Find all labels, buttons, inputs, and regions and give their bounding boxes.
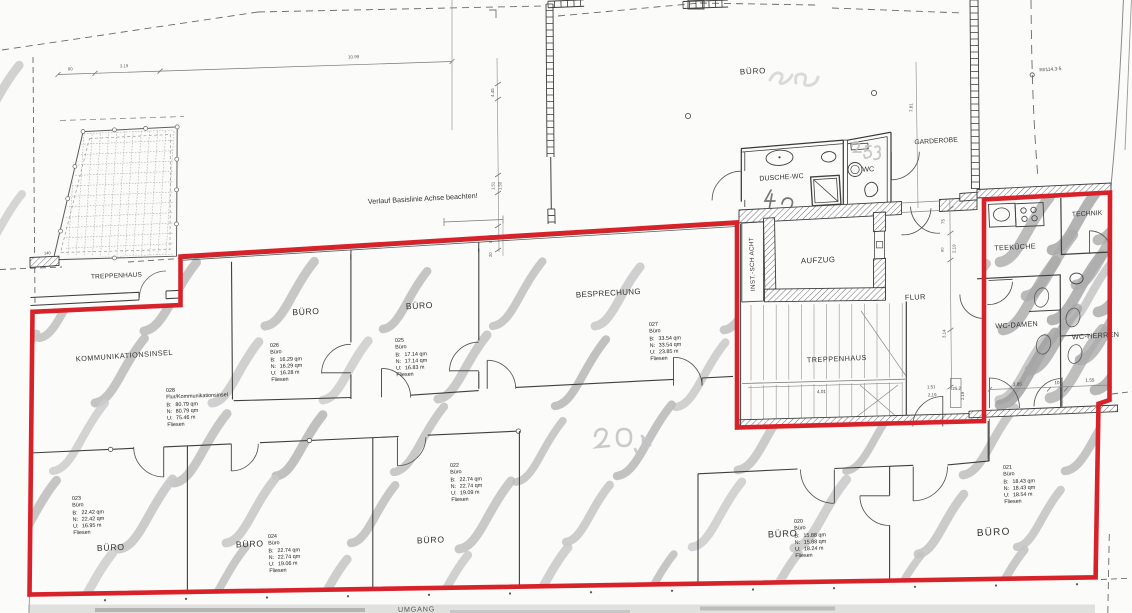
svg-text:2.19: 2.19 <box>952 244 957 253</box>
svg-text:025: 025 <box>395 338 404 344</box>
svg-text:B:: B: <box>649 336 654 342</box>
svg-text:WC: WC <box>862 164 874 174</box>
svg-text:Fliesen: Fliesen <box>650 356 668 363</box>
svg-text:10.99: 10.99 <box>348 54 360 59</box>
svg-text:Fliesen: Fliesen <box>795 553 813 560</box>
svg-text:B:: B: <box>450 477 455 483</box>
svg-text:80: 80 <box>68 66 74 71</box>
svg-text:U:: U: <box>451 490 457 496</box>
svg-text:Fliesen: Fliesen <box>167 422 185 429</box>
svg-text:U:: U: <box>1004 492 1010 498</box>
svg-text:10: 10 <box>1054 380 1060 385</box>
svg-text:1.85: 1.85 <box>1013 381 1023 386</box>
svg-text:022: 022 <box>450 463 459 469</box>
svg-text:N:: N: <box>269 555 275 561</box>
svg-text:BÜRO: BÜRO <box>236 538 264 549</box>
svg-text:N:: N: <box>73 517 79 523</box>
svg-text:80.79 qm: 80.79 qm <box>176 408 199 415</box>
svg-text:FLUR: FLUR <box>905 292 926 302</box>
svg-text:20: 20 <box>488 252 493 257</box>
svg-text:027: 027 <box>649 322 658 328</box>
svg-text:1.50: 1.50 <box>498 181 503 190</box>
svg-text:16.95 m: 16.95 m <box>82 523 102 530</box>
svg-text:1.55: 1.55 <box>1085 377 1095 382</box>
svg-text:BÜRO: BÜRO <box>406 300 434 311</box>
svg-text:028: 028 <box>166 388 175 394</box>
svg-text:2,19: 2,19 <box>928 392 937 397</box>
svg-text:B:: B: <box>270 357 275 363</box>
svg-text:N:: N: <box>271 364 277 370</box>
svg-text:80: 80 <box>940 247 945 252</box>
svg-text:3.14: 3.14 <box>942 329 947 338</box>
svg-text:Fliesen: Fliesen <box>451 497 469 504</box>
svg-text:140: 140 <box>44 250 52 255</box>
svg-text:N:: N: <box>167 409 173 415</box>
svg-text:22.74 qm: 22.74 qm <box>460 483 483 490</box>
svg-text:33.54 qm: 33.54 qm <box>659 342 682 349</box>
svg-text:B:: B: <box>72 510 77 516</box>
svg-text:BÜRO: BÜRO <box>417 534 445 545</box>
svg-text:026: 026 <box>270 343 279 349</box>
svg-text:U:: U: <box>73 523 79 529</box>
svg-text:UMGANG: UMGANG <box>398 604 435 613</box>
svg-text:U:: U: <box>269 561 275 567</box>
svg-text:Büro: Büro <box>395 344 407 350</box>
svg-text:16.83 m: 16.83 m <box>405 365 425 372</box>
svg-text:023: 023 <box>72 496 81 502</box>
svg-text:Fliesen: Fliesen <box>1004 499 1022 506</box>
svg-text:1.51: 1.51 <box>927 384 936 389</box>
svg-text:024: 024 <box>268 534 277 540</box>
svg-text:U:: U: <box>271 370 277 376</box>
svg-text:N:: N: <box>396 359 402 365</box>
svg-text:B:: B: <box>395 352 400 358</box>
svg-text:17.14 qm: 17.14 qm <box>405 358 428 365</box>
svg-text:AUFZUG: AUFZUG <box>801 255 836 265</box>
svg-text:75: 75 <box>941 219 946 224</box>
svg-text:19.09 m: 19.09 m <box>460 490 480 497</box>
svg-text:18.43 qm: 18.43 qm <box>1013 485 1036 492</box>
svg-text:75.46 m: 75.46 m <box>176 415 196 422</box>
svg-text:16.29 qm: 16.29 qm <box>280 363 303 370</box>
svg-text:U:: U: <box>167 415 173 421</box>
svg-text:Büro: Büro <box>450 469 462 475</box>
svg-text:B:: B: <box>1003 479 1008 485</box>
svg-text:Büro: Büro <box>270 349 282 355</box>
svg-text:Fliesen: Fliesen <box>73 530 91 537</box>
svg-text:B:: B: <box>268 548 273 554</box>
svg-text:15.88 qm: 15.88 qm <box>804 539 827 546</box>
svg-text:22.42 qm: 22.42 qm <box>82 516 105 523</box>
svg-text:19.06 m: 19.06 m <box>278 561 298 568</box>
svg-text:BÜRO: BÜRO <box>740 66 767 76</box>
svg-text:7.81: 7.81 <box>909 103 914 112</box>
svg-text:18.54 m: 18.54 m <box>1013 492 1033 499</box>
svg-text:Fliesen: Fliesen <box>269 568 287 575</box>
svg-text:N:: N: <box>451 484 457 490</box>
svg-text:4.01: 4.01 <box>817 389 827 394</box>
svg-text:Büro: Büro <box>268 540 280 546</box>
svg-text:23.85 m: 23.85 m <box>659 349 679 356</box>
svg-text:U:: U: <box>650 349 656 355</box>
svg-text:BÜRO: BÜRO <box>977 526 1011 539</box>
svg-text:4.45: 4.45 <box>490 88 495 97</box>
svg-text:N:: N: <box>650 343 656 349</box>
svg-text:Büro: Büro <box>72 502 84 508</box>
svg-text:22.74 qm: 22.74 qm <box>278 554 301 561</box>
svg-text:BÜRO: BÜRO <box>97 542 125 553</box>
svg-text:BÜRO: BÜRO <box>768 528 798 539</box>
svg-text:1.51: 1.51 <box>491 181 496 190</box>
svg-text:B:: B: <box>166 402 171 408</box>
svg-text:18.24 m: 18.24 m <box>804 546 824 553</box>
svg-text:Fliesen: Fliesen <box>271 377 289 384</box>
svg-text:Büro: Büro <box>1003 471 1015 477</box>
svg-text:3.19: 3.19 <box>120 63 129 68</box>
svg-text:U:: U: <box>396 365 402 371</box>
svg-text:Fliesen: Fliesen <box>396 372 414 379</box>
svg-text:Büro: Büro <box>649 328 661 334</box>
svg-text:N:: N: <box>1004 486 1010 492</box>
svg-text:021: 021 <box>1003 465 1012 471</box>
svg-text:BÜRO: BÜRO <box>292 306 320 317</box>
svg-text:25,2: 25,2 <box>952 386 961 391</box>
svg-text:020: 020 <box>794 519 803 525</box>
svg-text:U:: U: <box>795 546 801 552</box>
svg-text:16.28 m: 16.28 m <box>280 370 300 377</box>
svg-text:N:: N: <box>795 540 801 546</box>
